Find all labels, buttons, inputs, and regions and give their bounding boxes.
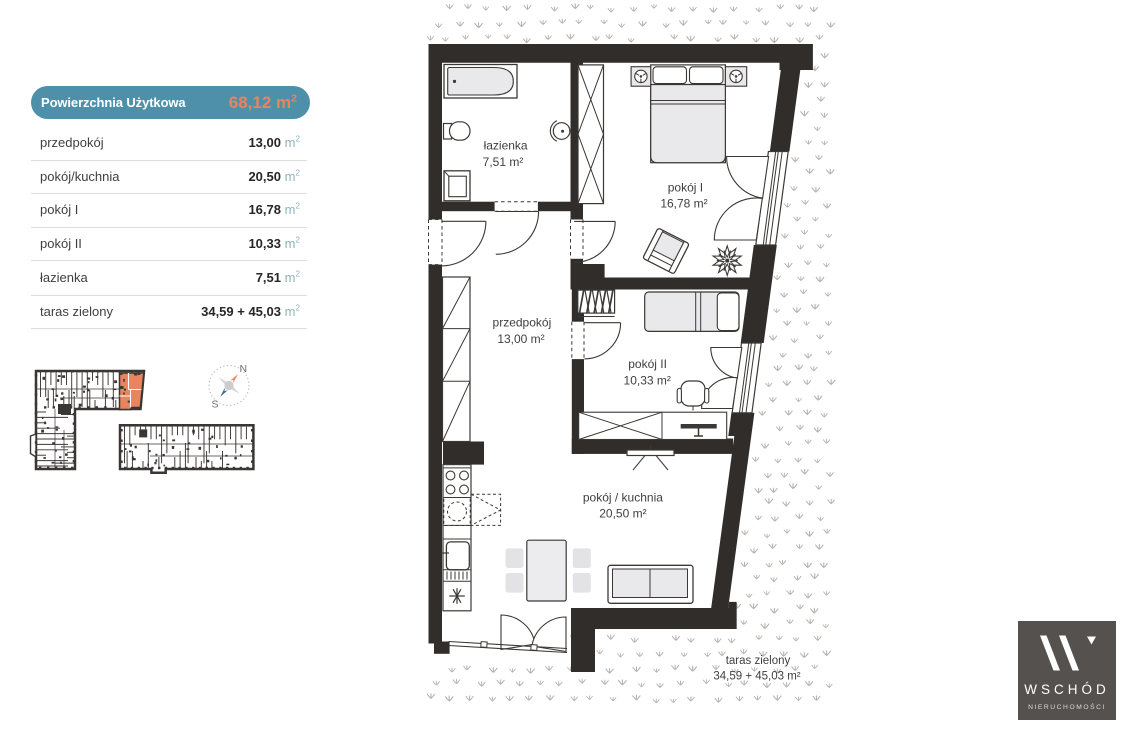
svg-text:łazienka: łazienka: [484, 139, 528, 153]
svg-text:pokój II: pokój II: [628, 357, 667, 371]
svg-text:pokój / kuchnia: pokój / kuchnia: [583, 491, 663, 505]
svg-text:WSCHÓD: WSCHÓD: [1024, 682, 1110, 697]
svg-text:10,33 m²: 10,33 m²: [624, 374, 671, 388]
svg-text:34,59 + 45,03 m²: 34,59 + 45,03 m²: [713, 671, 800, 683]
svg-text:przedpokój: przedpokój: [493, 316, 552, 330]
svg-text:taras zielony: taras zielony: [726, 655, 791, 667]
svg-text:S: S: [212, 399, 219, 411]
svg-text:NIERUCHOMOŚCI: NIERUCHOMOŚCI: [1028, 702, 1106, 711]
svg-text:N: N: [240, 363, 248, 375]
svg-text:pokój I: pokój I: [668, 181, 703, 195]
svg-text:7,51 m²: 7,51 m²: [483, 155, 524, 169]
svg-text:13,00 m²: 13,00 m²: [497, 332, 544, 346]
svg-text:20,50 m²: 20,50 m²: [599, 507, 646, 521]
svg-text:16,78 m²: 16,78 m²: [660, 197, 707, 211]
